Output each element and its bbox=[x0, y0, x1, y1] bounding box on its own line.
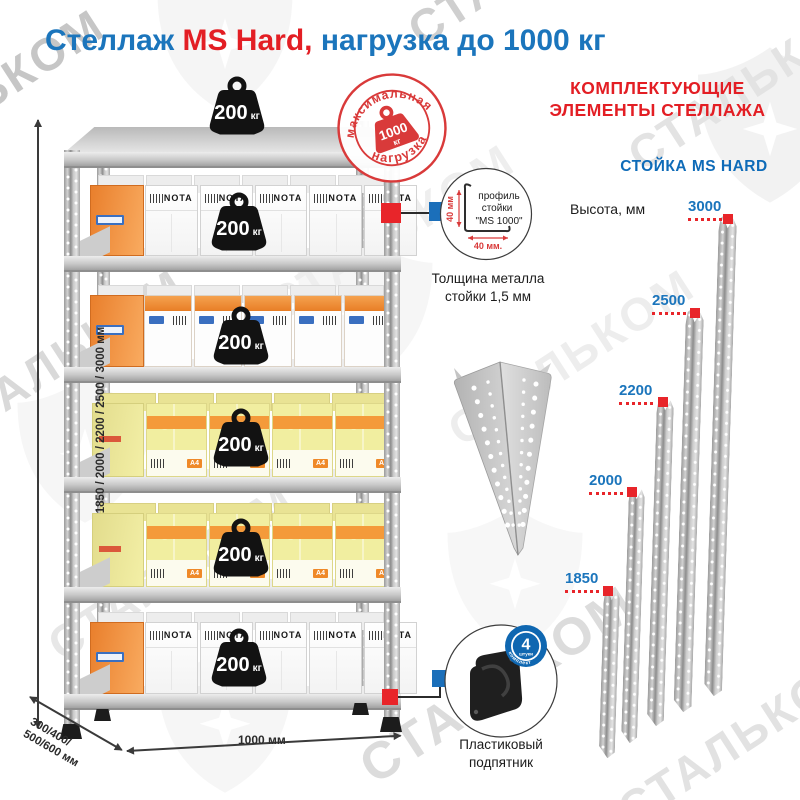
load-unit: кг bbox=[255, 341, 264, 352]
shelf-load-badge: 200кг bbox=[196, 628, 282, 688]
load-unit: кг bbox=[255, 553, 264, 564]
plastic-foot bbox=[94, 709, 111, 721]
shelf-edge bbox=[64, 694, 401, 710]
callout-marker-red bbox=[382, 689, 398, 705]
height-marker bbox=[658, 397, 668, 407]
barcode-icon bbox=[340, 459, 354, 468]
load-value: 200 bbox=[214, 102, 247, 124]
components-heading-line2: ЭЛЕМЕНТЫ СТЕЛЛАЖА bbox=[549, 100, 765, 120]
callout-line bbox=[397, 696, 441, 698]
height-label-1850: 1850 bbox=[565, 570, 599, 593]
height-label-2200: 2200 bbox=[619, 382, 653, 405]
dotted-leader bbox=[688, 218, 722, 221]
height-label-2500: 2500 bbox=[652, 292, 686, 315]
height-caption: Высота, мм bbox=[570, 201, 645, 217]
foot-caption: Пластиковый подпятник bbox=[444, 736, 558, 771]
height-label-2000: 2000 bbox=[589, 472, 623, 495]
profile-dim-horizontal: 40 мм. bbox=[474, 241, 502, 251]
nota-box: NOTA bbox=[309, 622, 362, 694]
load-unit: кг bbox=[253, 663, 262, 674]
orange-top-box bbox=[144, 295, 192, 367]
load-value: 200 bbox=[216, 218, 249, 240]
front-right-post bbox=[384, 143, 400, 730]
callout-marker-red bbox=[381, 203, 401, 223]
title-part-2: MS Hard, bbox=[182, 24, 312, 57]
callout-line bbox=[439, 687, 441, 698]
barcode-icon bbox=[323, 316, 337, 325]
barcode-icon bbox=[369, 631, 383, 640]
height-dimension-label: 1850 / 2000 / 2200 / 2500 / 3000 мм bbox=[95, 327, 107, 513]
load-unit: кг bbox=[253, 227, 262, 238]
shelf-edge bbox=[64, 367, 401, 383]
barcode-icon bbox=[150, 194, 164, 203]
callout-line bbox=[399, 212, 431, 214]
plastic-foot bbox=[380, 717, 402, 732]
box-side-label bbox=[96, 652, 124, 662]
included-count-badge: в комплекте 4 штуки bbox=[504, 624, 548, 673]
load-unit: кг bbox=[251, 111, 260, 122]
post-series-title: СТОЙКА MS HARD bbox=[594, 158, 794, 176]
components-heading: КОМПЛЕКТУЮЩИЕ ЭЛЕМЕНТЫ СТЕЛЛАЖА bbox=[540, 78, 775, 122]
nota-box: NOTA bbox=[309, 185, 362, 256]
height-marker bbox=[627, 487, 637, 497]
box-label-chip bbox=[299, 316, 314, 324]
title-part-3: нагрузка до 1000 кг bbox=[312, 24, 605, 57]
post-profile-detail: 40 мм 40 мм. профиль стойки "MS 1000" bbox=[438, 166, 534, 267]
dotted-leader bbox=[619, 402, 653, 405]
shelf-load-badge: 200кг bbox=[194, 76, 280, 136]
shelf-edge bbox=[64, 587, 401, 603]
barcode-icon bbox=[340, 569, 354, 578]
page-title: Стеллаж MS Hard, нагрузка до 1000 кг bbox=[45, 24, 606, 58]
shelf-edge bbox=[64, 256, 401, 272]
infographic-canvas: СТАЛЬКОМ СТАЛЬКОМ СТАЛЬКОМ СТАЛЬКОМ СТАЛ… bbox=[0, 0, 800, 800]
barcode-icon bbox=[151, 569, 165, 578]
shelf-load-badge: 200кг bbox=[198, 408, 284, 468]
load-unit: кг bbox=[255, 443, 264, 454]
load-value: 200 bbox=[218, 332, 251, 354]
box-brand-label: NOTA bbox=[328, 630, 357, 640]
orange-lid bbox=[295, 296, 341, 311]
profile-text-2: стойки bbox=[482, 203, 513, 214]
plastic-foot bbox=[352, 703, 369, 715]
shelf-load-badge: 200кг bbox=[196, 192, 282, 252]
paper-format-label: A4 bbox=[313, 569, 328, 578]
box-side-logo bbox=[99, 546, 121, 552]
box-label-chip bbox=[149, 316, 164, 324]
shelf-load-badge: 200кг bbox=[198, 518, 284, 578]
orange-lid bbox=[145, 296, 191, 311]
height-marker bbox=[723, 214, 733, 224]
load-value: 200 bbox=[216, 654, 249, 676]
dotted-leader bbox=[565, 590, 599, 593]
box-brand-label: NOTA bbox=[164, 630, 193, 640]
dotted-leader bbox=[589, 492, 623, 495]
height-dimension-line bbox=[37, 120, 39, 728]
load-value: 200 bbox=[218, 434, 251, 456]
load-value: 200 bbox=[218, 544, 251, 566]
profile-text-1: профиль bbox=[478, 190, 519, 202]
shelf-edge bbox=[64, 477, 401, 493]
angle-post-image bbox=[448, 350, 552, 570]
paper-format-label: A4 bbox=[313, 459, 328, 468]
height-marker bbox=[690, 308, 700, 318]
height-label-3000: 3000 bbox=[688, 198, 722, 221]
width-dimension-label: 1000 мм bbox=[238, 733, 286, 747]
orange-top-box bbox=[294, 295, 342, 367]
front-left-post bbox=[64, 150, 80, 737]
barcode-icon bbox=[173, 316, 187, 325]
box-brand-label: NOTA bbox=[164, 193, 193, 203]
barcode-icon bbox=[151, 459, 165, 468]
box-side-label bbox=[96, 215, 124, 225]
nota-box: NOTA bbox=[145, 622, 198, 694]
title-part-1: Стеллаж bbox=[45, 24, 182, 57]
plastic-foot-detail: в комплекте 4 штуки bbox=[442, 622, 560, 745]
box-label-chip bbox=[349, 316, 364, 324]
barcode-icon bbox=[314, 631, 328, 640]
box-brand-label: NOTA bbox=[328, 193, 357, 203]
barcode-icon bbox=[150, 631, 164, 640]
dotted-leader bbox=[652, 312, 686, 315]
shelf-load-badge: 200кг bbox=[198, 306, 284, 366]
profile-dim-vertical: 40 мм bbox=[445, 196, 455, 222]
height-marker bbox=[603, 586, 613, 596]
components-heading-line1: КОМПЛЕКТУЮЩИЕ bbox=[570, 78, 745, 98]
profile-caption: Толщина металла стойки 1,5 мм bbox=[428, 270, 548, 305]
barcode-icon bbox=[314, 194, 328, 203]
nota-box: NOTA bbox=[145, 185, 198, 256]
badge-unit: штуки bbox=[519, 652, 533, 657]
profile-text-3: "MS 1000" bbox=[475, 216, 523, 227]
